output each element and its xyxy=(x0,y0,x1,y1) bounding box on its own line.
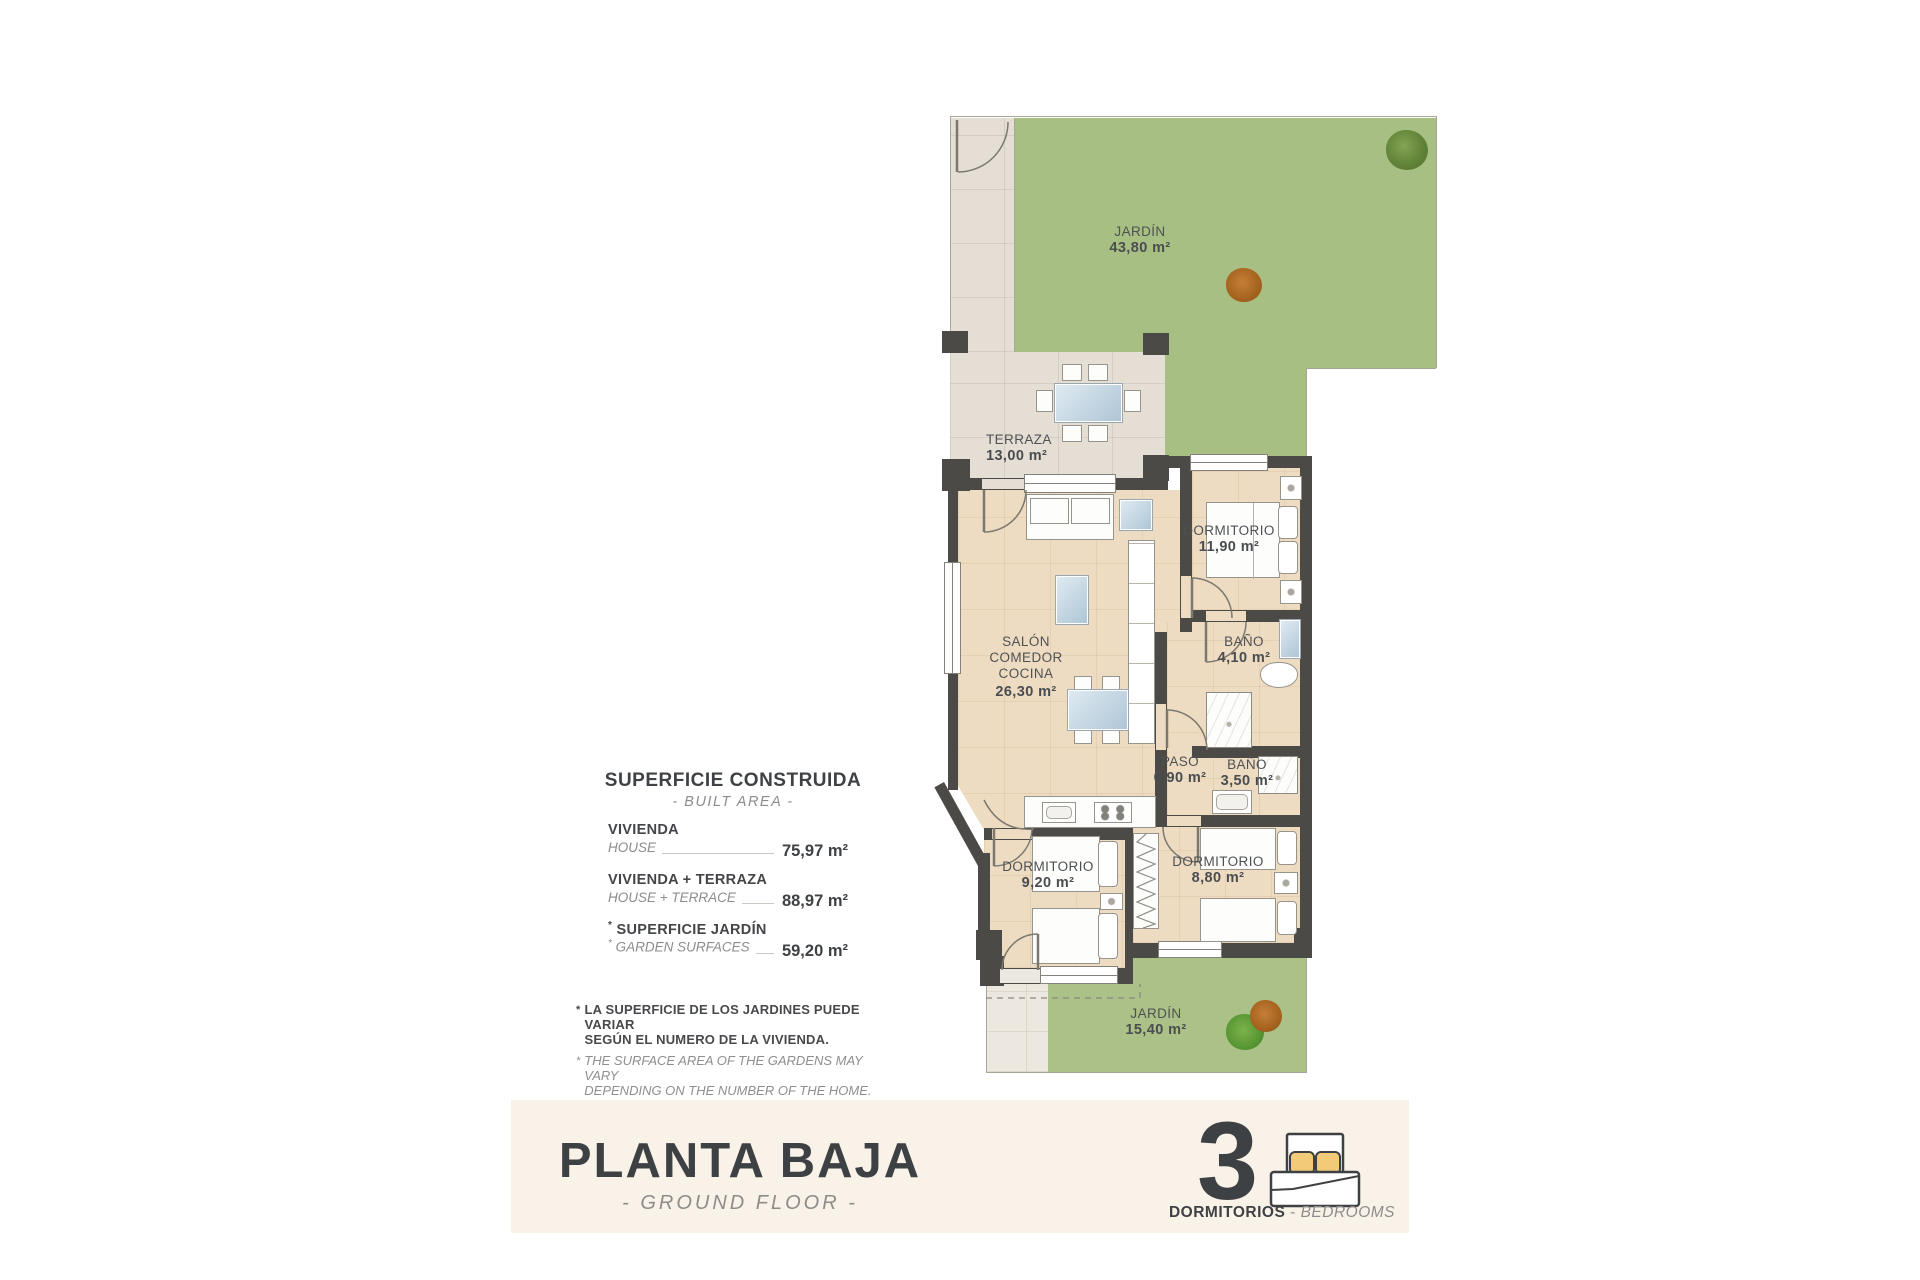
plot-line-right xyxy=(1436,116,1437,368)
label-dormitorio1: DORMITORIO 11,90 m² xyxy=(1183,523,1275,555)
label-salon: SALÓN COMEDOR COCINA 26,30 m² xyxy=(989,634,1062,700)
label-dormitorio3: DORMITORIO 8,80 m² xyxy=(1172,854,1264,886)
row-label-es: VIVIENDA xyxy=(608,822,679,838)
label-paso: PASO 0,90 m² xyxy=(1154,754,1207,786)
room-area: 8,80 m² xyxy=(1172,870,1264,886)
window-terrace-salon xyxy=(1024,474,1116,493)
bath-sink xyxy=(1212,790,1252,814)
dining-chair xyxy=(1074,728,1092,744)
nightstand xyxy=(1100,893,1123,910)
nightstand xyxy=(1274,872,1298,894)
opening-bath1 xyxy=(1206,611,1246,621)
bed-single xyxy=(1032,908,1100,964)
note-es-line1: LA SUPERFICIE DE LOS JARDINES PUEDE VARI… xyxy=(584,1002,886,1032)
shower-tray xyxy=(1206,692,1252,748)
garden-bottom-line-bottom xyxy=(986,1072,1307,1073)
bath-sink-counter xyxy=(1280,620,1300,658)
window-dorm3 xyxy=(1158,941,1222,958)
row-value: 75,97 m² xyxy=(774,842,848,861)
note-es-line2: SEGÚN EL NUMERO DE LA VIVIENDA. xyxy=(584,1032,886,1047)
summary-subtitle: - BUILT AREA - xyxy=(672,794,793,810)
coffee-table xyxy=(1056,576,1088,624)
bedrooms-label-es: DORMITORIOS xyxy=(1169,1204,1285,1221)
summary-row: VIVIENDA HOUSE 75,97 m² xyxy=(608,820,848,863)
room-name: DORMITORIO xyxy=(1172,854,1264,870)
room-area: 13,00 m² xyxy=(986,448,1052,464)
room-area: 9,20 m² xyxy=(1002,875,1094,891)
note-en-line2: DEPENDING ON THE NUMBER OF THE HOME. xyxy=(584,1083,886,1098)
label-terraza: TERRAZA 13,00 m² xyxy=(986,432,1052,464)
page-title: PLANTA BAJA xyxy=(559,1133,921,1189)
kitchen-sink xyxy=(1042,802,1076,823)
opening-dorm2-bottom xyxy=(1000,969,1040,983)
tree-icon xyxy=(1386,130,1428,170)
terrace-chair xyxy=(1062,364,1082,381)
room-name: PASO xyxy=(1154,754,1207,770)
pillow xyxy=(1278,506,1298,539)
row-label-en: GARDEN SURFACES xyxy=(616,940,750,955)
garden-top-lower xyxy=(1165,368,1306,460)
closet xyxy=(1133,833,1159,929)
label-garden-bottom: JARDÍN 15,40 m² xyxy=(1125,1006,1186,1038)
opening-dorm2-top xyxy=(992,829,1032,839)
terrace-table xyxy=(1055,384,1122,422)
bedroom-count: 3 xyxy=(1197,1118,1258,1206)
floor-plan-page: JARDÍN 43,80 m² TERRAZA 13,00 m² SALÓN C… xyxy=(0,0,1920,1280)
garden-bottom-upper xyxy=(1133,957,1306,984)
stove xyxy=(1094,802,1132,823)
plot-line-top xyxy=(950,116,1436,117)
room-name: JARDÍN xyxy=(1125,1006,1186,1022)
room-area: 43,80 m² xyxy=(1109,240,1170,256)
plot-line-step-h xyxy=(1306,368,1436,369)
note-en-line1: THE SURFACE AREA OF THE GARDENS MAY VARY xyxy=(584,1053,886,1083)
sofa-cushion xyxy=(1071,498,1110,524)
summary-rows: VIVIENDA HOUSE 75,97 m² VIVIENDA + TERRA… xyxy=(608,820,848,970)
garden-bottom-line-right xyxy=(1306,957,1307,1073)
room-name: JARDÍN xyxy=(1109,224,1170,240)
window-salon-left xyxy=(944,562,961,674)
room-area: 3,50 m² xyxy=(1221,773,1274,789)
terrace-chair xyxy=(1124,390,1141,412)
room-name: DORMITORIO xyxy=(1002,859,1094,875)
wall-right xyxy=(1300,456,1312,958)
room-area: 11,90 m² xyxy=(1183,539,1275,555)
shrub-icon-bottom xyxy=(1250,1000,1282,1032)
walkway-top xyxy=(950,118,1014,352)
room-name: COMEDOR xyxy=(989,650,1062,666)
room-name: BAÑO xyxy=(1221,757,1274,773)
kitchen-tall-units xyxy=(1128,540,1155,744)
garden-bottom-line-left xyxy=(986,984,987,1073)
shrub-icon xyxy=(1226,268,1262,302)
terrace-chair xyxy=(1088,364,1108,381)
walkway-edge-line xyxy=(1014,118,1015,352)
label-dormitorio2: DORMITORIO 9,20 m² xyxy=(1002,859,1094,891)
terrace-chair xyxy=(1036,390,1053,412)
plot-line-left xyxy=(950,116,951,352)
summary-title: SUPERFICIE CONSTRUIDA xyxy=(605,770,861,792)
bed-icon xyxy=(1263,1130,1367,1210)
pillow xyxy=(1278,541,1298,574)
terrace-floor xyxy=(950,352,1165,492)
row-label-en: HOUSE xyxy=(608,840,656,855)
bed-single xyxy=(1200,898,1276,942)
window-dorm2 xyxy=(1040,966,1118,984)
row-label-en: HOUSE + TERRACE xyxy=(608,890,736,905)
bedrooms-caption: DORMITORIOS - BEDROOMS xyxy=(1169,1204,1395,1222)
column xyxy=(1143,333,1169,355)
terrace-chair xyxy=(1062,425,1082,442)
sofa xyxy=(1026,494,1114,540)
label-garden-top: JARDÍN 43,80 m² xyxy=(1109,224,1170,256)
room-name: DORMITORIO xyxy=(1183,523,1275,539)
garden-note: * LA SUPERFICIE DE LOS JARDINES PUEDE VA… xyxy=(576,1002,886,1098)
room-name: BAÑO xyxy=(1218,634,1271,650)
row-label-es: VIVIENDA + TERRAZA xyxy=(608,872,767,888)
pillow xyxy=(1277,831,1297,865)
opening-terrace-door xyxy=(982,479,1024,489)
label-bano1: BAÑO 4,10 m² xyxy=(1218,634,1271,666)
nightstand xyxy=(1280,476,1302,500)
tv-unit xyxy=(1120,500,1152,530)
room-area: 4,10 m² xyxy=(1218,650,1271,666)
column xyxy=(942,331,968,353)
bedrooms-label-en: BEDROOMS xyxy=(1301,1204,1395,1221)
sofa-cushion xyxy=(1030,498,1069,524)
nightstand xyxy=(1280,580,1302,604)
wall-dorm2-dorm3 xyxy=(1125,828,1133,984)
pillow xyxy=(1098,841,1118,887)
wall-left-lower xyxy=(978,853,990,938)
summary-row: VIVIENDA + TERRAZA HOUSE + TERRACE 88,97… xyxy=(608,870,848,913)
garden-top xyxy=(1014,118,1436,368)
room-name: SALÓN xyxy=(989,634,1062,650)
room-area: 0,90 m² xyxy=(1154,770,1207,786)
dining-table xyxy=(1068,690,1128,730)
room-name: TERRAZA xyxy=(986,432,1052,448)
room-area: 15,40 m² xyxy=(1125,1022,1186,1038)
plot-line-step-v xyxy=(1306,368,1307,460)
window-dorm1 xyxy=(1190,454,1268,471)
row-label-es: SUPERFICIE JARDÍN xyxy=(617,921,767,937)
label-bano2: BAÑO 3,50 m² xyxy=(1221,757,1274,789)
pillow xyxy=(1277,901,1297,935)
opening-dorm1 xyxy=(1181,576,1191,618)
room-area: 26,30 m² xyxy=(989,684,1062,700)
terrace-chair xyxy=(1088,425,1108,442)
dining-chair xyxy=(1102,728,1120,744)
row-value: 59,20 m² xyxy=(774,942,848,961)
opening-salon-paso xyxy=(1156,704,1166,750)
page-subtitle: - GROUND FLOOR - xyxy=(622,1192,858,1215)
pillow xyxy=(1098,913,1118,959)
walkway-bottom xyxy=(986,984,1048,1072)
row-value: 88,97 m² xyxy=(774,892,848,911)
footer-bar: PLANTA BAJA - GROUND FLOOR - 3 DORMITORI… xyxy=(511,1100,1409,1233)
room-name: COCINA xyxy=(989,666,1062,682)
summary-row: * SUPERFICIE JARDÍN * GARDEN SURFACES 59… xyxy=(608,920,848,963)
opening-dorm3 xyxy=(1167,816,1201,826)
